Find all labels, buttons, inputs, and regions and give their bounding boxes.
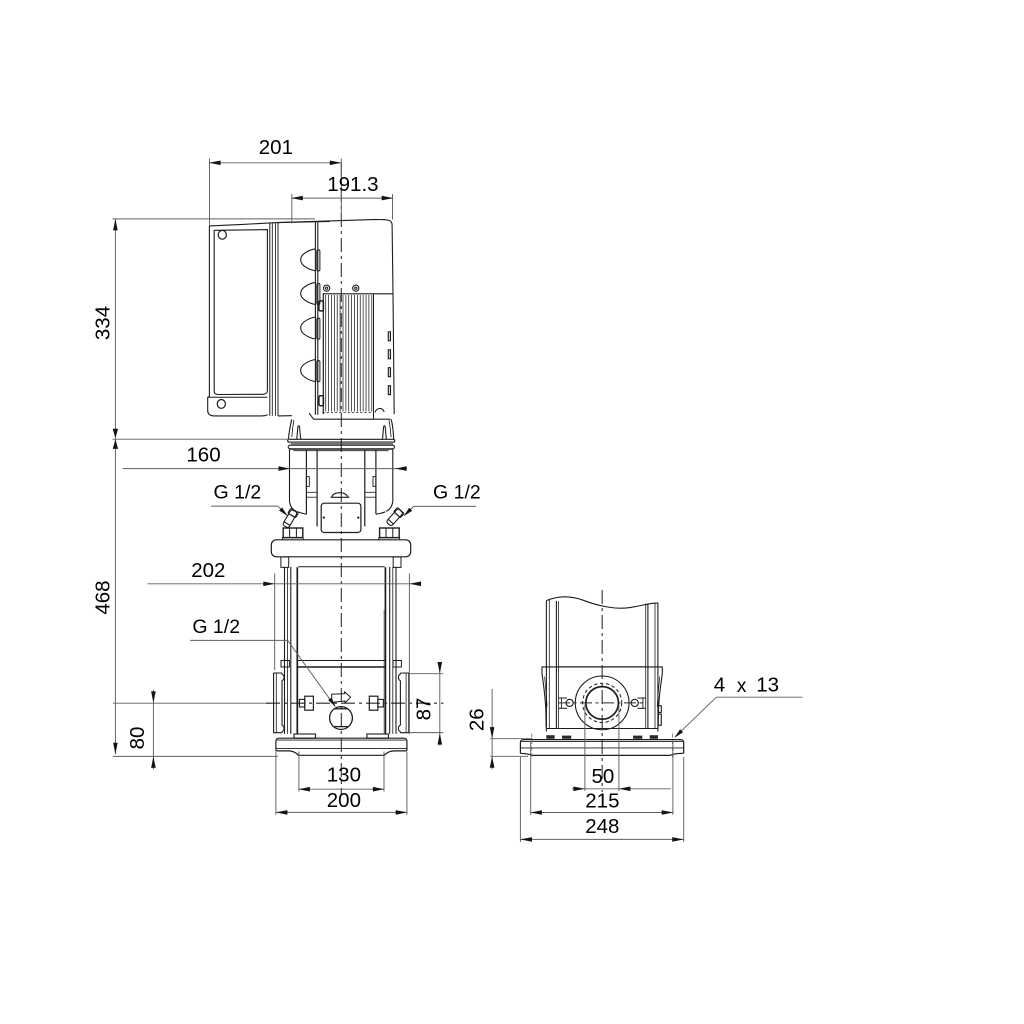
svg-text:26: 26 bbox=[465, 708, 488, 731]
svg-text:50: 50 bbox=[591, 765, 614, 788]
svg-text:334: 334 bbox=[91, 306, 114, 340]
svg-text:4: 4 bbox=[714, 673, 725, 696]
svg-text:468: 468 bbox=[92, 580, 115, 614]
svg-text:G 1/2: G 1/2 bbox=[192, 616, 240, 638]
svg-text:87: 87 bbox=[412, 698, 435, 721]
svg-text:160: 160 bbox=[186, 444, 220, 467]
svg-text:248: 248 bbox=[585, 815, 619, 838]
svg-text:202: 202 bbox=[191, 559, 225, 582]
svg-text:201: 201 bbox=[259, 136, 293, 159]
svg-text:G 1/2: G 1/2 bbox=[214, 482, 262, 504]
svg-text:215: 215 bbox=[585, 790, 619, 813]
svg-text:x: x bbox=[737, 676, 747, 697]
svg-text:130: 130 bbox=[327, 764, 361, 787]
svg-text:80: 80 bbox=[126, 727, 149, 750]
svg-text:200: 200 bbox=[327, 789, 361, 812]
svg-text:191.3: 191.3 bbox=[327, 173, 378, 196]
svg-text:G 1/2: G 1/2 bbox=[433, 482, 481, 504]
svg-text:13: 13 bbox=[756, 673, 779, 696]
